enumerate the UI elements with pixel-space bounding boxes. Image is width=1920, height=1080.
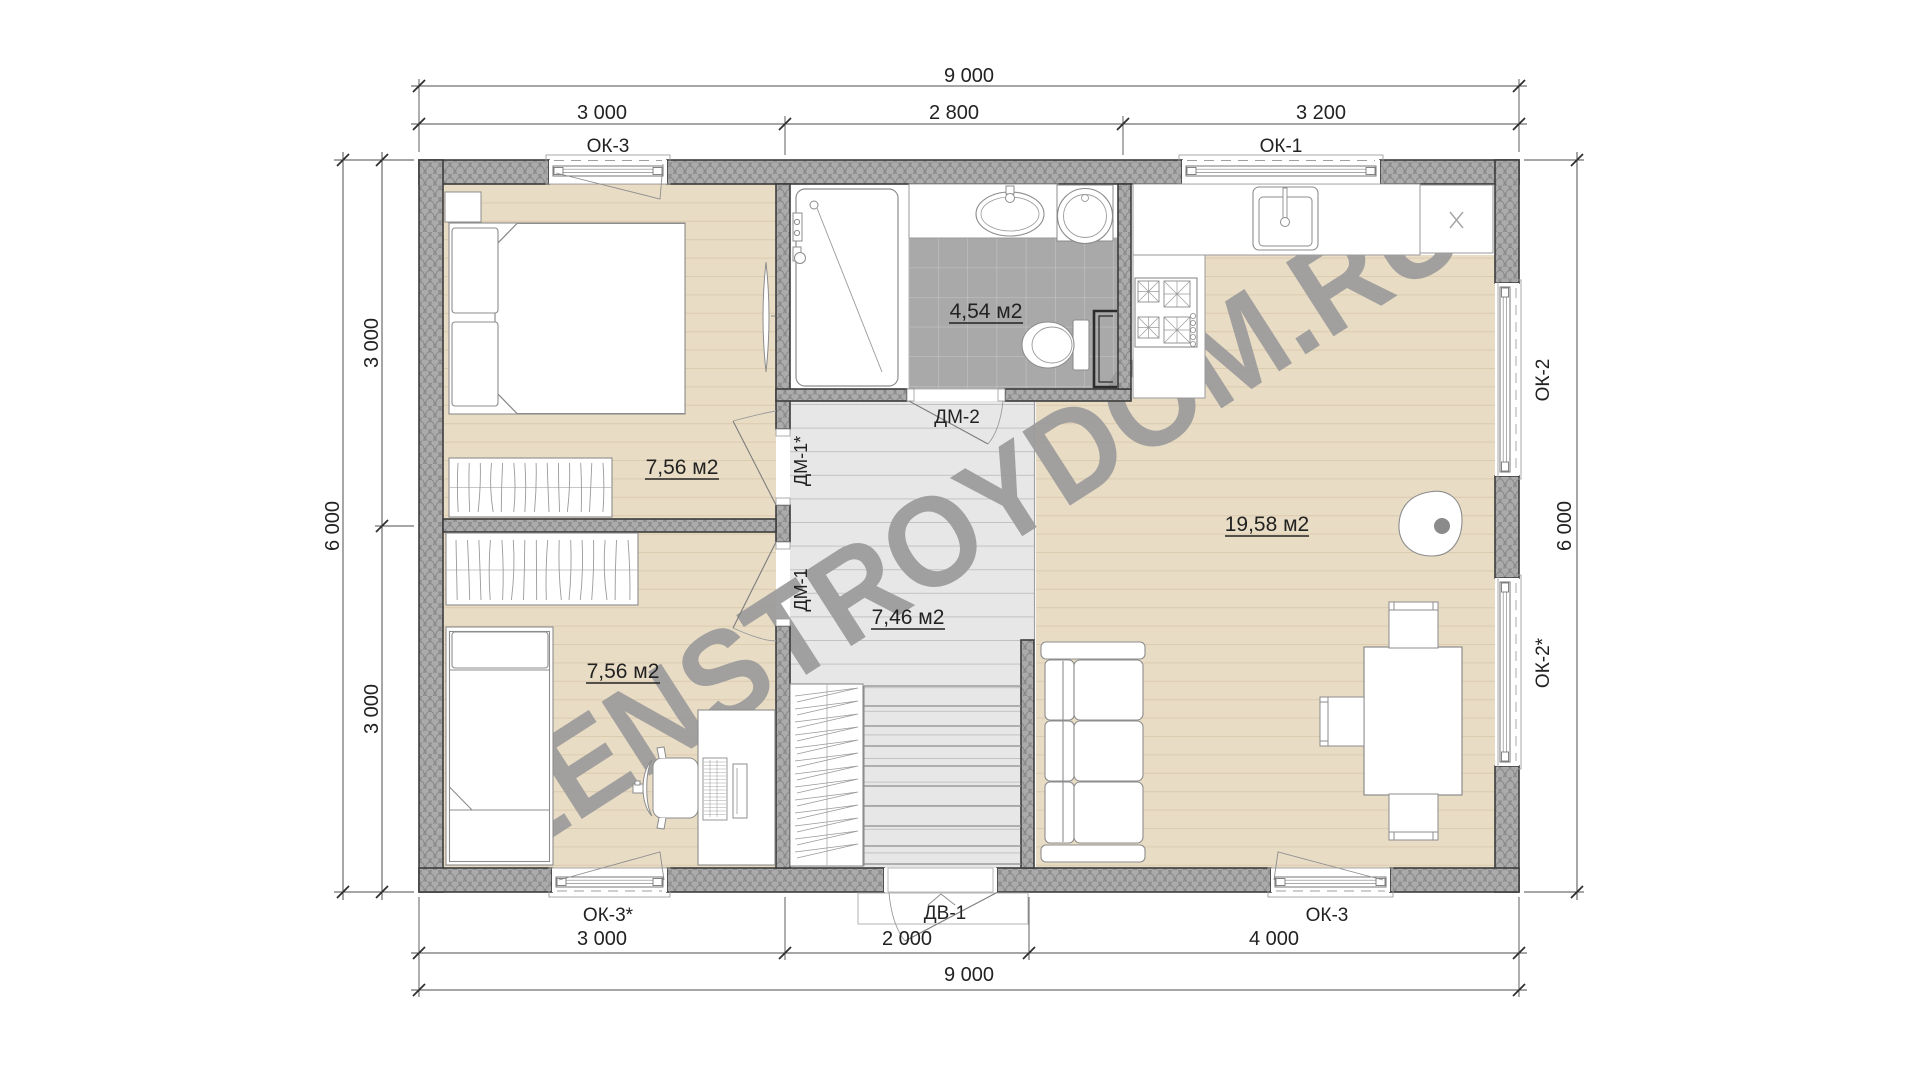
svg-text:ДВ-1: ДВ-1 <box>924 903 966 924</box>
svg-text:2 800: 2 800 <box>929 102 979 124</box>
svg-text:ДМ-1: ДМ-1 <box>791 568 811 611</box>
svg-text:ОК-3*: ОК-3* <box>583 905 634 926</box>
svg-text:3 200: 3 200 <box>1296 102 1346 124</box>
svg-text:6 000: 6 000 <box>1554 501 1576 551</box>
svg-text:ОК-1: ОК-1 <box>1260 136 1303 157</box>
svg-text:19,58 м2: 19,58 м2 <box>1225 513 1310 536</box>
svg-text:ДМ-1*: ДМ-1* <box>791 436 811 486</box>
svg-text:9 000: 9 000 <box>944 65 994 87</box>
svg-text:2 000: 2 000 <box>882 928 932 950</box>
svg-text:4 000: 4 000 <box>1249 928 1299 950</box>
svg-text:3 000: 3 000 <box>361 318 383 368</box>
svg-text:7,56 м2: 7,56 м2 <box>587 660 660 683</box>
svg-text:ДМ-2: ДМ-2 <box>934 407 980 428</box>
svg-text:ОК-3: ОК-3 <box>587 136 630 157</box>
svg-text:ОК-3: ОК-3 <box>1306 905 1349 926</box>
svg-text:4,54 м2: 4,54 м2 <box>950 300 1023 323</box>
svg-text:3 000: 3 000 <box>577 928 627 950</box>
svg-text:ОК-2*: ОК-2* <box>1533 637 1554 688</box>
svg-text:3 000: 3 000 <box>577 102 627 124</box>
svg-text:3 000: 3 000 <box>361 684 383 734</box>
svg-text:9 000: 9 000 <box>944 964 994 986</box>
svg-text:6 000: 6 000 <box>322 501 344 551</box>
svg-text:7,46 м2: 7,46 м2 <box>872 606 945 629</box>
svg-text:7,56 м2: 7,56 м2 <box>646 456 719 479</box>
svg-text:ОК-2: ОК-2 <box>1533 359 1554 402</box>
